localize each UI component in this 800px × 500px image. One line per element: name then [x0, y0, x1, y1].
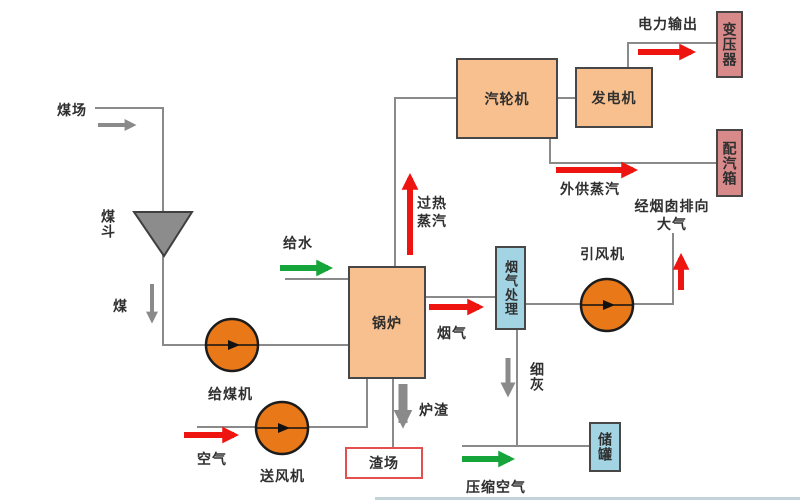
slag-yard-label: 渣场 — [369, 453, 399, 473]
boiler-box: 锅炉 — [348, 266, 426, 379]
coal-hopper-funnel-icon — [134, 212, 192, 256]
coal-yard-label: 煤场 — [57, 100, 87, 120]
steam-distribution-label: 配汽箱 — [723, 141, 737, 186]
transformer-box: 变压器 — [716, 11, 743, 78]
power-output-line — [628, 43, 716, 68]
slag-label: 炉渣 — [419, 400, 449, 420]
power-output-label: 电力输出 — [638, 14, 698, 34]
coal-path-line — [95, 108, 349, 345]
steam-turbine-box: 汽轮机 — [456, 58, 558, 139]
steam-distribution-box: 配汽箱 — [716, 129, 743, 197]
generator-label: 发电机 — [592, 88, 637, 108]
flue-gas-label: 烟气 — [437, 323, 467, 343]
boiler-label: 锅炉 — [372, 313, 402, 333]
feed-water-label: 给水 — [283, 233, 313, 253]
diagram-canvas — [0, 0, 800, 500]
steam-turbine-label: 汽轮机 — [485, 89, 530, 109]
process-flow-diagram: 锅炉 汽轮机 发电机 变压器 配汽箱 烟气处理 储罐 渣场 煤场 煤斗 煤 给煤… — [0, 0, 800, 500]
superheated-steam-label: 过热 蒸汽 — [417, 194, 451, 230]
external-steam-line — [550, 139, 716, 163]
external-steam-label: 外供蒸汽 — [560, 179, 620, 199]
transformer-label: 变压器 — [723, 22, 737, 67]
stack-discharge-label: 经烟囱排向 大气 — [628, 197, 716, 233]
induced-draft-fan-label: 引风机 — [580, 244, 625, 264]
compressed-air-label: 压缩空气 — [466, 477, 526, 497]
coal-label: 煤 — [113, 296, 128, 316]
superheated-steam-line — [395, 98, 457, 267]
air-label: 空气 — [197, 449, 227, 469]
forced-draft-fan-label: 送风机 — [260, 466, 305, 486]
slag-yard-box: 渣场 — [345, 447, 423, 479]
coal-feeder-label: 给煤机 — [208, 384, 253, 404]
flue-gas-treatment-box: 烟气处理 — [495, 246, 526, 330]
storage-tank-label: 储罐 — [598, 432, 612, 462]
storage-tank-box: 储罐 — [589, 422, 621, 472]
coal-hopper-label: 煤斗 — [101, 209, 115, 239]
generator-box: 发电机 — [575, 67, 653, 128]
fine-ash-label: 细灰 — [530, 362, 544, 392]
flue-gas-treatment-label: 烟气处理 — [504, 260, 517, 316]
